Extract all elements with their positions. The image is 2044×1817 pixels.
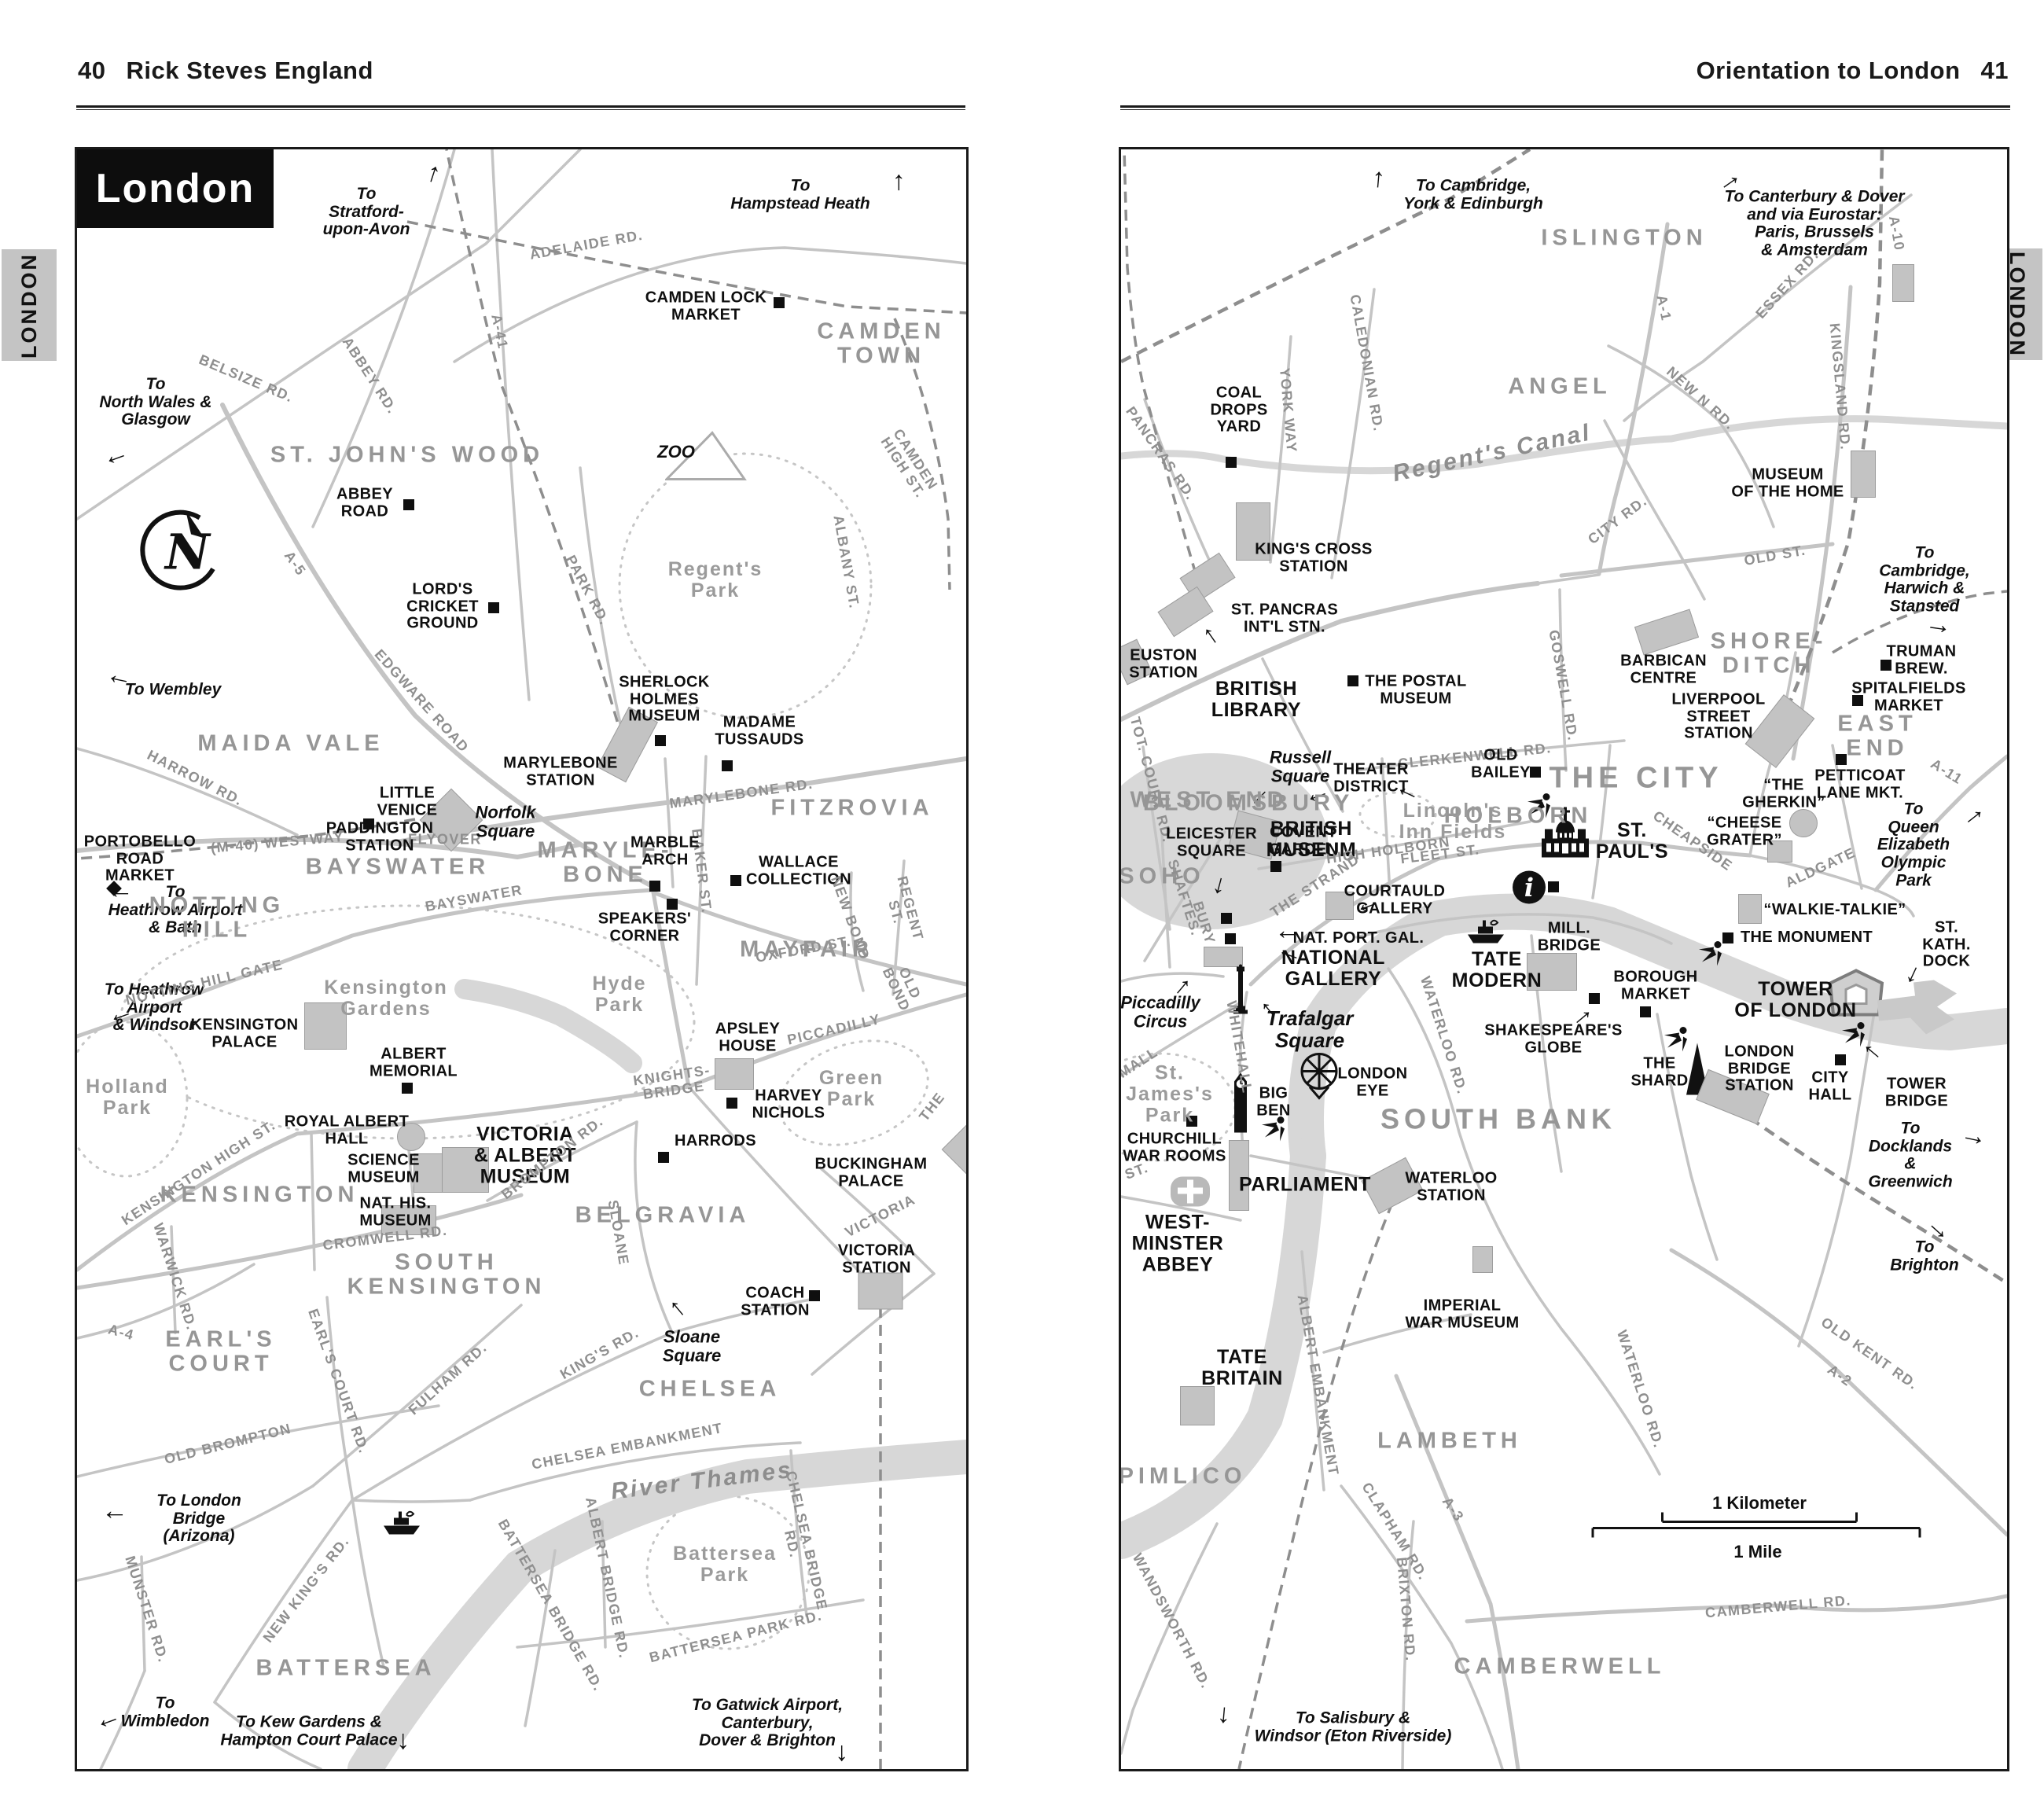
left-header-title: Rick Steves England [126, 57, 373, 84]
road [1657, 1014, 1717, 1260]
rail-line [1239, 1203, 1392, 1769]
road [1121, 973, 1223, 981]
rail-line [1124, 149, 1196, 574]
road [812, 1274, 934, 1374]
road [101, 1671, 145, 1769]
lincolns-inn-area [1360, 793, 1436, 837]
road [1145, 399, 1209, 560]
battersea-park-area [647, 1496, 809, 1649]
rail-line [1750, 1118, 2007, 1283]
road [1357, 741, 1624, 771]
road [1876, 756, 2007, 890]
road [77, 840, 580, 857]
road [1396, 1376, 1518, 1769]
road [1599, 224, 1667, 574]
road [1270, 337, 1291, 562]
road [1251, 1156, 1420, 1189]
st-james-park-area [1121, 1054, 1235, 1160]
road [893, 861, 904, 995]
road [580, 468, 627, 755]
regents-canal [1121, 419, 2007, 471]
road [1750, 653, 1796, 855]
left-tab-label: LONDON [17, 252, 42, 359]
road [697, 756, 706, 984]
right-page-number: 41 [1981, 57, 2009, 84]
road [672, 1299, 814, 1333]
rail-line [1780, 149, 1882, 725]
road [1593, 745, 1610, 898]
hyde-park-area [120, 906, 694, 1138]
road [352, 1498, 384, 1667]
road [1388, 969, 1660, 1474]
road [1341, 1486, 1502, 1769]
road [215, 1702, 321, 1769]
london-overview-map: London N→→→→→→→→→→→To Stratford- upon-Av… [75, 147, 969, 1771]
guidebook-spread: 40Rick Steves England Orientation to Lon… [0, 0, 2044, 1817]
left-page-number: 40 [78, 57, 105, 84]
rail-line [1833, 591, 2007, 653]
left-header-rule [76, 105, 965, 110]
road [171, 1227, 175, 1333]
right-header-title: Orientation to London [1697, 57, 1961, 84]
road [407, 1132, 414, 1203]
right-header-rule [1120, 105, 2010, 110]
road [1324, 1315, 1471, 1352]
road [1799, 1013, 1874, 1346]
road [77, 749, 297, 835]
right-page-header: Orientation to London41 [1697, 57, 2009, 85]
road [851, 873, 863, 991]
road [1467, 1596, 2007, 1621]
road [1240, 992, 1247, 1165]
road [1531, 936, 1561, 1171]
road [1121, 1197, 1241, 1220]
road [215, 1500, 352, 1702]
road [487, 1122, 637, 1201]
road [313, 1305, 521, 1486]
road [327, 1297, 352, 1498]
road [77, 1195, 521, 1288]
road [1671, 1250, 2007, 1535]
road [77, 1486, 313, 1580]
thames-main [1306, 912, 2007, 1156]
road [454, 248, 966, 362]
road [1121, 583, 1538, 719]
road [1833, 745, 1862, 888]
regents-park-area [619, 454, 871, 718]
road [1793, 287, 1851, 759]
road [313, 149, 454, 527]
road [1560, 590, 1566, 771]
road [311, 1134, 314, 1270]
road [492, 149, 529, 700]
green-park-area [766, 1023, 942, 1163]
rail-line [895, 318, 950, 590]
road [1121, 1524, 1217, 1753]
road [352, 1500, 470, 1502]
rail-line [407, 222, 966, 313]
road [1605, 421, 1704, 599]
road [1750, 855, 1913, 916]
road [635, 1122, 672, 1333]
road [352, 1333, 672, 1500]
left-edge-tab: LONDON [2, 249, 57, 361]
road [1332, 289, 1374, 578]
west-end-area [1121, 753, 1328, 929]
road [1402, 1521, 1414, 1769]
left-map-canvas [77, 149, 966, 1769]
rail-line [1121, 149, 1530, 362]
left-page-header: 40Rick Steves England [78, 57, 373, 85]
road [77, 1406, 439, 1477]
road [820, 1168, 934, 1274]
right-map-canvas [1121, 149, 2007, 1769]
map-title: London [77, 149, 274, 228]
road [142, 1557, 145, 1671]
road [665, 759, 673, 887]
central-london-map: i→→→→→→→→→→→→→→→→→→→→To Cambridge, York … [1119, 147, 2009, 1771]
rail-line [447, 149, 627, 756]
